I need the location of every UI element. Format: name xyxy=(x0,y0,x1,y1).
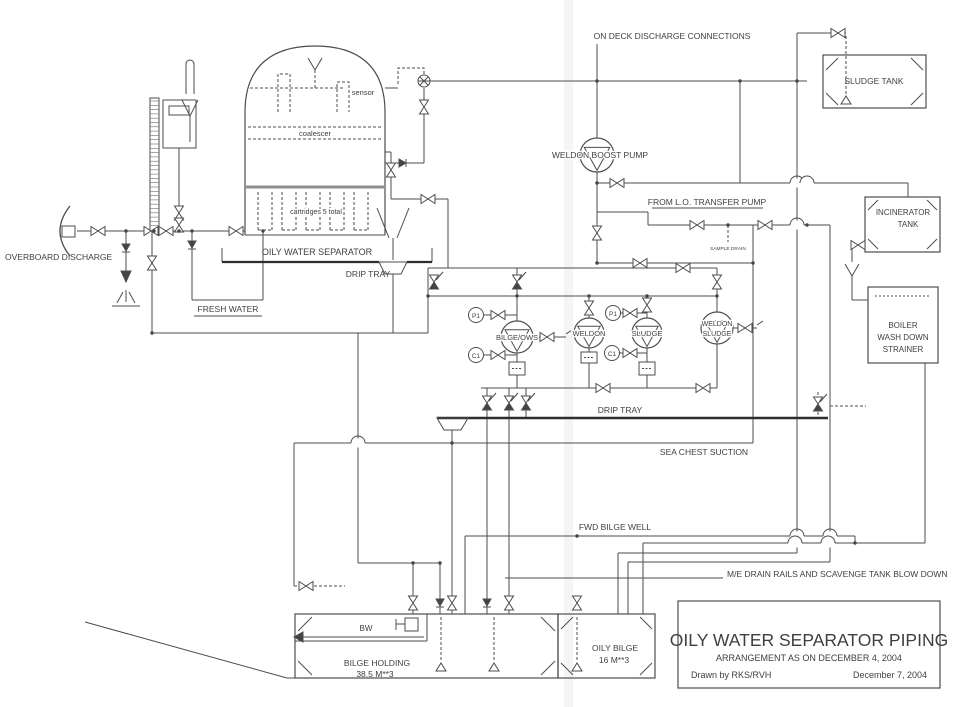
tag-c1-bilge-ows: C1 xyxy=(472,353,481,360)
pump-weldon-label: WELDON xyxy=(573,329,606,338)
boiler-strainer-label-2: WASH DOWN xyxy=(877,333,928,342)
sea-chest-suction-label: SEA CHEST SUCTION xyxy=(660,447,748,457)
junction-dot xyxy=(795,79,798,82)
junction-dot xyxy=(715,294,718,297)
oily-bilge-label-1: OILY BILGE xyxy=(592,643,638,653)
pipe-crossover xyxy=(800,179,814,188)
junction-dot xyxy=(515,294,518,297)
junction-dot xyxy=(190,229,193,232)
junction-dot xyxy=(411,561,414,564)
junction-dot xyxy=(150,331,153,334)
boiler-strainer-label-3: STRAINER xyxy=(883,345,924,354)
junction-dot xyxy=(595,181,598,184)
title-block: OILY WATER SEPARATOR PIPING ARRANGEMENT … xyxy=(670,601,948,688)
drip-tray-left-label: DRIP TRAY xyxy=(346,269,391,279)
pump-icon xyxy=(701,312,733,344)
sample-drain-label: SAMPLE DRAIN xyxy=(710,246,746,252)
pump-weldon-sludge-label-2: SLUDGE xyxy=(703,331,732,338)
junction-dot xyxy=(575,534,578,537)
tag-c1-sludge: C1 xyxy=(608,351,617,358)
junction-dot xyxy=(426,294,429,297)
fwd-bilge-well-label: FWD BILGE WELL xyxy=(579,522,652,532)
drawing-title: OILY WATER SEPARATOR PIPING xyxy=(670,630,948,650)
cartridges-label: cartridges 5 total xyxy=(290,209,342,216)
coalescer-label: coalescer xyxy=(299,129,332,138)
sensor-label: sensor xyxy=(352,88,375,97)
junction-dot xyxy=(751,261,754,264)
drawn-by: Drawn by RKS/RVH xyxy=(691,670,771,680)
piping-diagram-canvas: ON DECK DISCHARGE CONNECTIONS SLUDGE TAN… xyxy=(0,0,960,707)
incinerator-tank-label-2: TANK xyxy=(898,220,919,229)
overboard-discharge-label: OVERBOARD DISCHARGE xyxy=(5,252,113,262)
junction-dot xyxy=(177,229,180,232)
junction-dot xyxy=(595,261,598,264)
bilge-holding-label-2: 38.5 M**3 xyxy=(356,669,394,679)
junction-dot xyxy=(261,229,264,232)
on-deck-discharge-label: ON DECK DISCHARGE CONNECTIONS xyxy=(594,31,751,41)
piping-diagram-page: ON DECK DISCHARGE CONNECTIONS SLUDGE TAN… xyxy=(0,0,960,707)
scan-artifact xyxy=(564,0,573,707)
junction-dot xyxy=(645,294,648,297)
tag-p1-sludge: P1 xyxy=(609,311,617,318)
pump-weldon-sludge-label-1: WELDON xyxy=(702,321,733,328)
sludge-tank-label: SLUDGE TANK xyxy=(844,76,904,86)
junction-dot xyxy=(726,223,729,226)
drawing-date: December 7, 2004 xyxy=(853,670,927,680)
weldon-boost-pump-label: WELDON BOOST PUMP xyxy=(552,150,649,160)
drip-tray-right-label: DRIP TRAY xyxy=(598,405,643,415)
junction-dot xyxy=(450,441,453,444)
junction-dot xyxy=(805,223,808,226)
boiler-strainer-label-1: BOILER xyxy=(888,321,918,330)
junction-dot xyxy=(853,541,856,544)
oily-water-separator-label: OILY WATER SEPARATOR xyxy=(262,247,373,257)
bw-label: BW xyxy=(360,624,373,633)
pump-sludge-label: SLUDGE xyxy=(632,329,663,338)
junction-dot xyxy=(124,229,127,232)
bilge-holding-label-1: BILGE HOLDING xyxy=(344,658,410,668)
pipe-crossover xyxy=(788,539,802,548)
junction-dot xyxy=(438,561,441,564)
junction-dot xyxy=(595,79,598,82)
pipe-crossover xyxy=(790,221,804,230)
oily-bilge-label-2: 16 M**3 xyxy=(599,655,630,665)
tag-p1-bilge-ows: P1 xyxy=(472,313,480,320)
me-drain-rails-label: M/E DRAIN RAILS AND SCAVENGE TANK BLOW D… xyxy=(727,569,948,579)
fresh-water-label: FRESH WATER xyxy=(198,304,259,314)
from-lo-transfer-label: FROM L.O. TRANSFER PUMP xyxy=(648,197,767,207)
pipe-crossover xyxy=(351,439,365,448)
junction-dot xyxy=(152,229,155,232)
pump-bilge-ows-label: BILGE/OWS xyxy=(496,333,538,342)
drawing-subtitle: ARRANGEMENT AS ON DECEMBER 4, 2004 xyxy=(716,653,902,663)
pipe-crossover xyxy=(821,539,835,548)
junction-dot xyxy=(587,294,590,297)
incinerator-tank-label-1: INCINERATOR xyxy=(876,208,931,217)
